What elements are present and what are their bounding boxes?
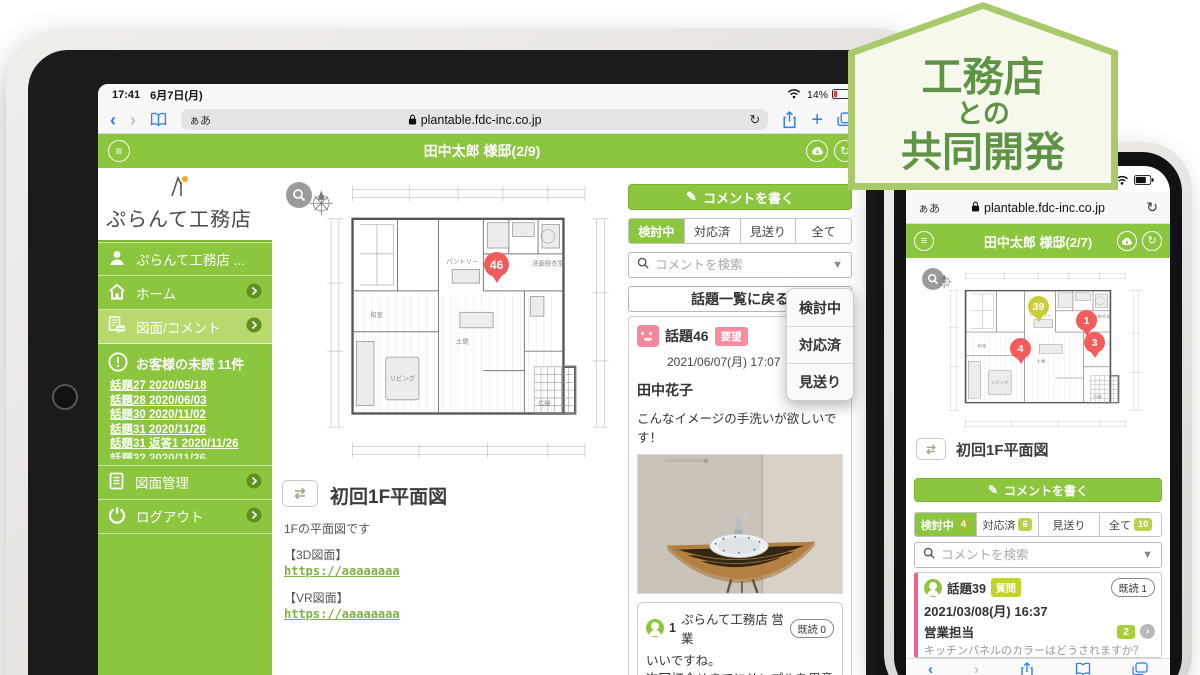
svg-text:和室: 和室 — [978, 343, 987, 348]
badge-line1: 工務店 — [922, 56, 1045, 99]
badge-line3: 共同開発 — [901, 130, 1065, 175]
svg-text:和室: 和室 — [370, 310, 383, 319]
plan-title: 初回1F平面図 — [330, 482, 447, 509]
battery-icon — [1134, 172, 1154, 190]
read-badge: 既読 0 — [790, 619, 834, 638]
home-icon — [108, 283, 126, 303]
plan-marker[interactable]: 39 — [1028, 296, 1049, 317]
account-label: ぷらんて工務店 ... — [136, 249, 245, 269]
share-icon[interactable] — [1020, 662, 1034, 675]
unread-title: お客様の未読 11件 — [136, 354, 244, 373]
status-tabs: 検討中 対応済 見送り 全て — [628, 218, 852, 244]
tab-pending[interactable]: 検討中4 — [915, 513, 976, 536]
logo-text: ぷらんて工務店 — [106, 203, 252, 232]
pencil-icon: ✎ — [988, 483, 998, 497]
topic-id: 話題46 — [665, 326, 709, 346]
reply-card: 1 ぷらんて工務店 営業 既読 0 いいですね。 次回打合せまでにサンプルを用意… — [637, 602, 843, 675]
status-tabs: 検討中4 対応済6 見送り 全て10 — [914, 512, 1162, 537]
staff-avatar — [924, 579, 942, 597]
battery-percent: 14% — [807, 89, 828, 101]
address-bar[interactable]: ぁあ plantable.fdc-inc.co.jp ↻ — [181, 109, 768, 130]
search-input[interactable] — [655, 258, 826, 272]
dropdown-caret-icon[interactable]: ▼ — [832, 259, 843, 271]
topic-card[interactable]: 話題39 質問 既読 1 2021/03/08(月) 16:37 営業担当 2 … — [914, 572, 1162, 658]
topic-text: キッチンパネルのカラーはどうされますか？ — [924, 644, 1155, 659]
sidebar-item-drawing-manage[interactable]: 図面管理 — [98, 466, 272, 500]
write-comment-button[interactable]: ✎ コメントを書く — [914, 478, 1162, 502]
svg-text:土間: 土間 — [456, 336, 469, 345]
back-button[interactable]: ‹ — [928, 662, 933, 675]
logout-label: ログアウト — [136, 506, 204, 526]
sidebar: ぷらんて工務店 ぷらんて工務店 ... ホーム 図面/コメント — [98, 168, 272, 675]
zoom-icon[interactable] — [286, 182, 312, 208]
comment-search[interactable]: ▼ — [914, 542, 1162, 568]
topic-tag-badge: 要望 — [715, 327, 748, 346]
customer-avatar — [637, 325, 659, 347]
user-icon — [108, 249, 126, 270]
staff-avatar — [646, 619, 664, 637]
unread-link[interactable]: 話題31 返答1 2020/11/26 — [110, 437, 264, 452]
reply-count: 1 — [669, 621, 676, 635]
svg-text:洗面脱衣室: 洗面脱衣室 — [532, 259, 564, 268]
plan-marker[interactable]: 4 — [1010, 338, 1031, 359]
tab-done[interactable]: 対応済 — [684, 219, 740, 243]
share-icon[interactable] — [782, 111, 797, 129]
bookmarks-icon[interactable] — [150, 112, 167, 127]
attached-photo[interactable] — [637, 454, 843, 594]
pencil-icon: ✎ — [686, 189, 697, 205]
comment-search[interactable]: ▼ — [628, 252, 852, 278]
svg-text:広縁: 広縁 — [538, 399, 551, 408]
unread-link[interactable]: 話題27 2020/05/18 — [110, 379, 264, 394]
forward-button[interactable]: › — [130, 111, 136, 129]
refresh-icon[interactable]: ↻ — [1142, 231, 1162, 251]
back-button[interactable]: ‹ — [110, 111, 116, 129]
reload-icon[interactable]: ↻ — [749, 112, 760, 128]
svg-text:リビング: リビング — [991, 379, 1008, 384]
tab-done[interactable]: 対応済6 — [976, 513, 1038, 536]
plan-description: 1Fの平面図です — [284, 520, 370, 537]
tab-all[interactable]: 全て — [795, 219, 851, 243]
zoom-icon[interactable] — [922, 268, 944, 290]
reply-line1: いいですね。 — [646, 652, 834, 670]
status-dropdown-menu: 検討中 対応済 見送り — [786, 288, 854, 401]
chevron-right-icon — [246, 317, 262, 336]
document-icon — [108, 472, 125, 493]
unread-link[interactable]: 話題31 2020/11/26 — [110, 423, 264, 438]
plan-3d-link[interactable]: https://aaaaaaaa — [284, 564, 400, 578]
search-icon — [923, 546, 935, 564]
phone-screen: ぁあ plantable.fdc-inc.co.jp ↻ ≡ 田中太郎 様邸(2… — [906, 166, 1170, 675]
topic-id: 話題39 — [947, 578, 986, 597]
badge-line2: との — [956, 99, 1010, 130]
unread-link-clipped[interactable]: 話題32 2020/11/26 — [110, 452, 264, 459]
lock-icon — [408, 114, 417, 125]
dropdown-item-pending[interactable]: 検討中 — [787, 289, 853, 326]
page-title: 田中太郎 様邸(2/9) — [98, 141, 866, 161]
svg-text:広縁: 広縁 — [1093, 394, 1102, 399]
topic-author: 営業担当 — [924, 622, 974, 641]
dropdown-item-done[interactable]: 対応済 — [787, 326, 853, 363]
svg-text:パントリー: パントリー — [446, 258, 478, 266]
url-text: plantable.fdc-inc.co.jp — [421, 113, 542, 127]
tab-all[interactable]: 全て10 — [1099, 513, 1161, 536]
svg-text:リビング: リビング — [390, 373, 416, 382]
tab-skipped[interactable]: 見送り — [1038, 513, 1100, 536]
chevron-right-icon[interactable]: › — [1140, 624, 1155, 639]
main-content: 和室リビング パントリー洗面脱衣室 土間広縁 46 初回1F平面図 1Fの平面図… — [272, 168, 866, 675]
plan-3d-label: 【3D図面】 — [284, 546, 347, 563]
reply-count-badge: 2 — [1117, 625, 1135, 639]
tab-pending[interactable]: 検討中 — [629, 219, 684, 243]
search-input[interactable] — [941, 548, 1136, 562]
plan-vr-link[interactable]: https://aaaaaaaa — [284, 607, 400, 621]
unread-link[interactable]: 話題28 2020/06/03 — [110, 394, 264, 409]
sidebar-item-account[interactable]: ぷらんて工務店 ... — [98, 242, 272, 276]
safari-toolbar: ‹ › ぁあ plantable.fdc-inc.co.jp ↻ + — [98, 106, 866, 134]
phone-floor-plan[interactable]: 和室リビング パントリー洗面脱衣室 土間広縁 39 1 3 4 — [924, 266, 1152, 434]
home-label: ホーム — [136, 283, 176, 303]
cloud-download-icon[interactable] — [806, 140, 828, 162]
new-tab-icon[interactable]: + — [811, 110, 823, 130]
tabs-icon[interactable] — [1132, 662, 1148, 675]
cloud-download-icon[interactable] — [1117, 231, 1137, 251]
lock-icon — [971, 201, 980, 215]
chevron-right-icon — [246, 473, 262, 492]
status-time: 17:41 — [112, 89, 140, 101]
read-badge: 既読 1 — [1111, 578, 1155, 597]
chevron-right-icon — [246, 507, 262, 526]
topic-date: 2021/03/08(月) 16:37 — [924, 601, 1155, 620]
search-icon — [637, 256, 649, 274]
unread-section-header: お客様の未読 11件 — [98, 344, 272, 379]
status-date: 6月7日(月) — [150, 87, 203, 103]
plan-marker[interactable]: 3 — [1084, 332, 1105, 353]
topic-text: こんなイメージの手洗いが欲しいです！ — [637, 408, 843, 446]
unread-links: 話題27 2020/05/18 話題28 2020/06/03 話題30 202… — [98, 379, 272, 466]
sidebar-item-home[interactable]: ホーム — [98, 276, 272, 310]
tablet-screen: 17:41 6月7日(月) 14% ‹ › ぁあ plantable.fdc-i… — [98, 84, 866, 675]
unread-link[interactable]: 話題30 2020/11/02 — [110, 408, 264, 423]
chevron-right-icon — [246, 283, 262, 302]
logo-icon — [164, 174, 194, 205]
marketing-composite: 17:41 6月7日(月) 14% ‹ › ぁあ plantable.fdc-i… — [0, 0, 1200, 675]
plan-title: 初回1F平面図 — [956, 439, 1049, 460]
comments-panel: ✎ コメントを書く 検討中 対応済 見送り 全て ▼ 話題一覧に戻る — [628, 184, 852, 675]
tablet-front-camera — [52, 384, 78, 410]
wifi-icon — [787, 88, 801, 102]
floor-plan[interactable]: 和室リビング パントリー洗面脱衣室 土間広縁 46 — [292, 176, 624, 468]
url-text: plantable.fdc-inc.co.jp — [984, 201, 1105, 215]
alert-icon — [108, 352, 128, 375]
tablet-status-bar: 17:41 6月7日(月) 14% — [98, 84, 866, 106]
swap-plan-button[interactable] — [916, 438, 946, 460]
sidebar-item-plans-comments[interactable]: 図面/コメント — [98, 310, 272, 344]
topic-tag-badge: 質問 — [991, 578, 1021, 597]
app-header: ≡ 田中太郎 様邸(2/9) ↻ — [98, 134, 866, 168]
plan-marker[interactable]: 1 — [1076, 310, 1097, 331]
reload-icon[interactable]: ↻ — [1146, 199, 1158, 216]
plan-marker[interactable]: 46 — [484, 252, 509, 277]
power-icon — [108, 506, 126, 527]
swap-plan-button[interactable] — [282, 480, 318, 507]
sidebar-logo: ぷらんて工務店 — [98, 168, 272, 242]
phone-safari-toolbar: ‹ › — [906, 658, 1170, 675]
phone-app-header: ≡ 田中太郎 様邸(2/7) ↻ — [906, 224, 1170, 258]
reply-author: ぷらんて工務店 営業 — [681, 609, 785, 647]
forward-button[interactable]: › — [974, 662, 979, 675]
svg-text:土間: 土間 — [1037, 358, 1046, 363]
drawing-comment-icon — [108, 316, 126, 337]
sidebar-item-logout[interactable]: ログアウト — [98, 500, 272, 534]
phone-safari-bar: ぁあ plantable.fdc-inc.co.jp ↻ — [906, 192, 1170, 224]
dropdown-caret-icon[interactable]: ▼ — [1142, 549, 1153, 561]
reply-line2: 次回打合せまでにサンプルを用意致します。 — [646, 670, 834, 675]
write-comment-button[interactable]: ✎ コメントを書く — [628, 184, 852, 210]
dropdown-item-skipped[interactable]: 見送り — [787, 363, 853, 400]
tab-skipped[interactable]: 見送り — [740, 219, 796, 243]
bookmarks-icon[interactable] — [1075, 662, 1091, 675]
plans-comments-label: 図面/コメント — [136, 317, 221, 337]
plan-vr-label: 【VR図面】 — [284, 589, 349, 606]
drawing-manage-label: 図面管理 — [135, 472, 189, 492]
